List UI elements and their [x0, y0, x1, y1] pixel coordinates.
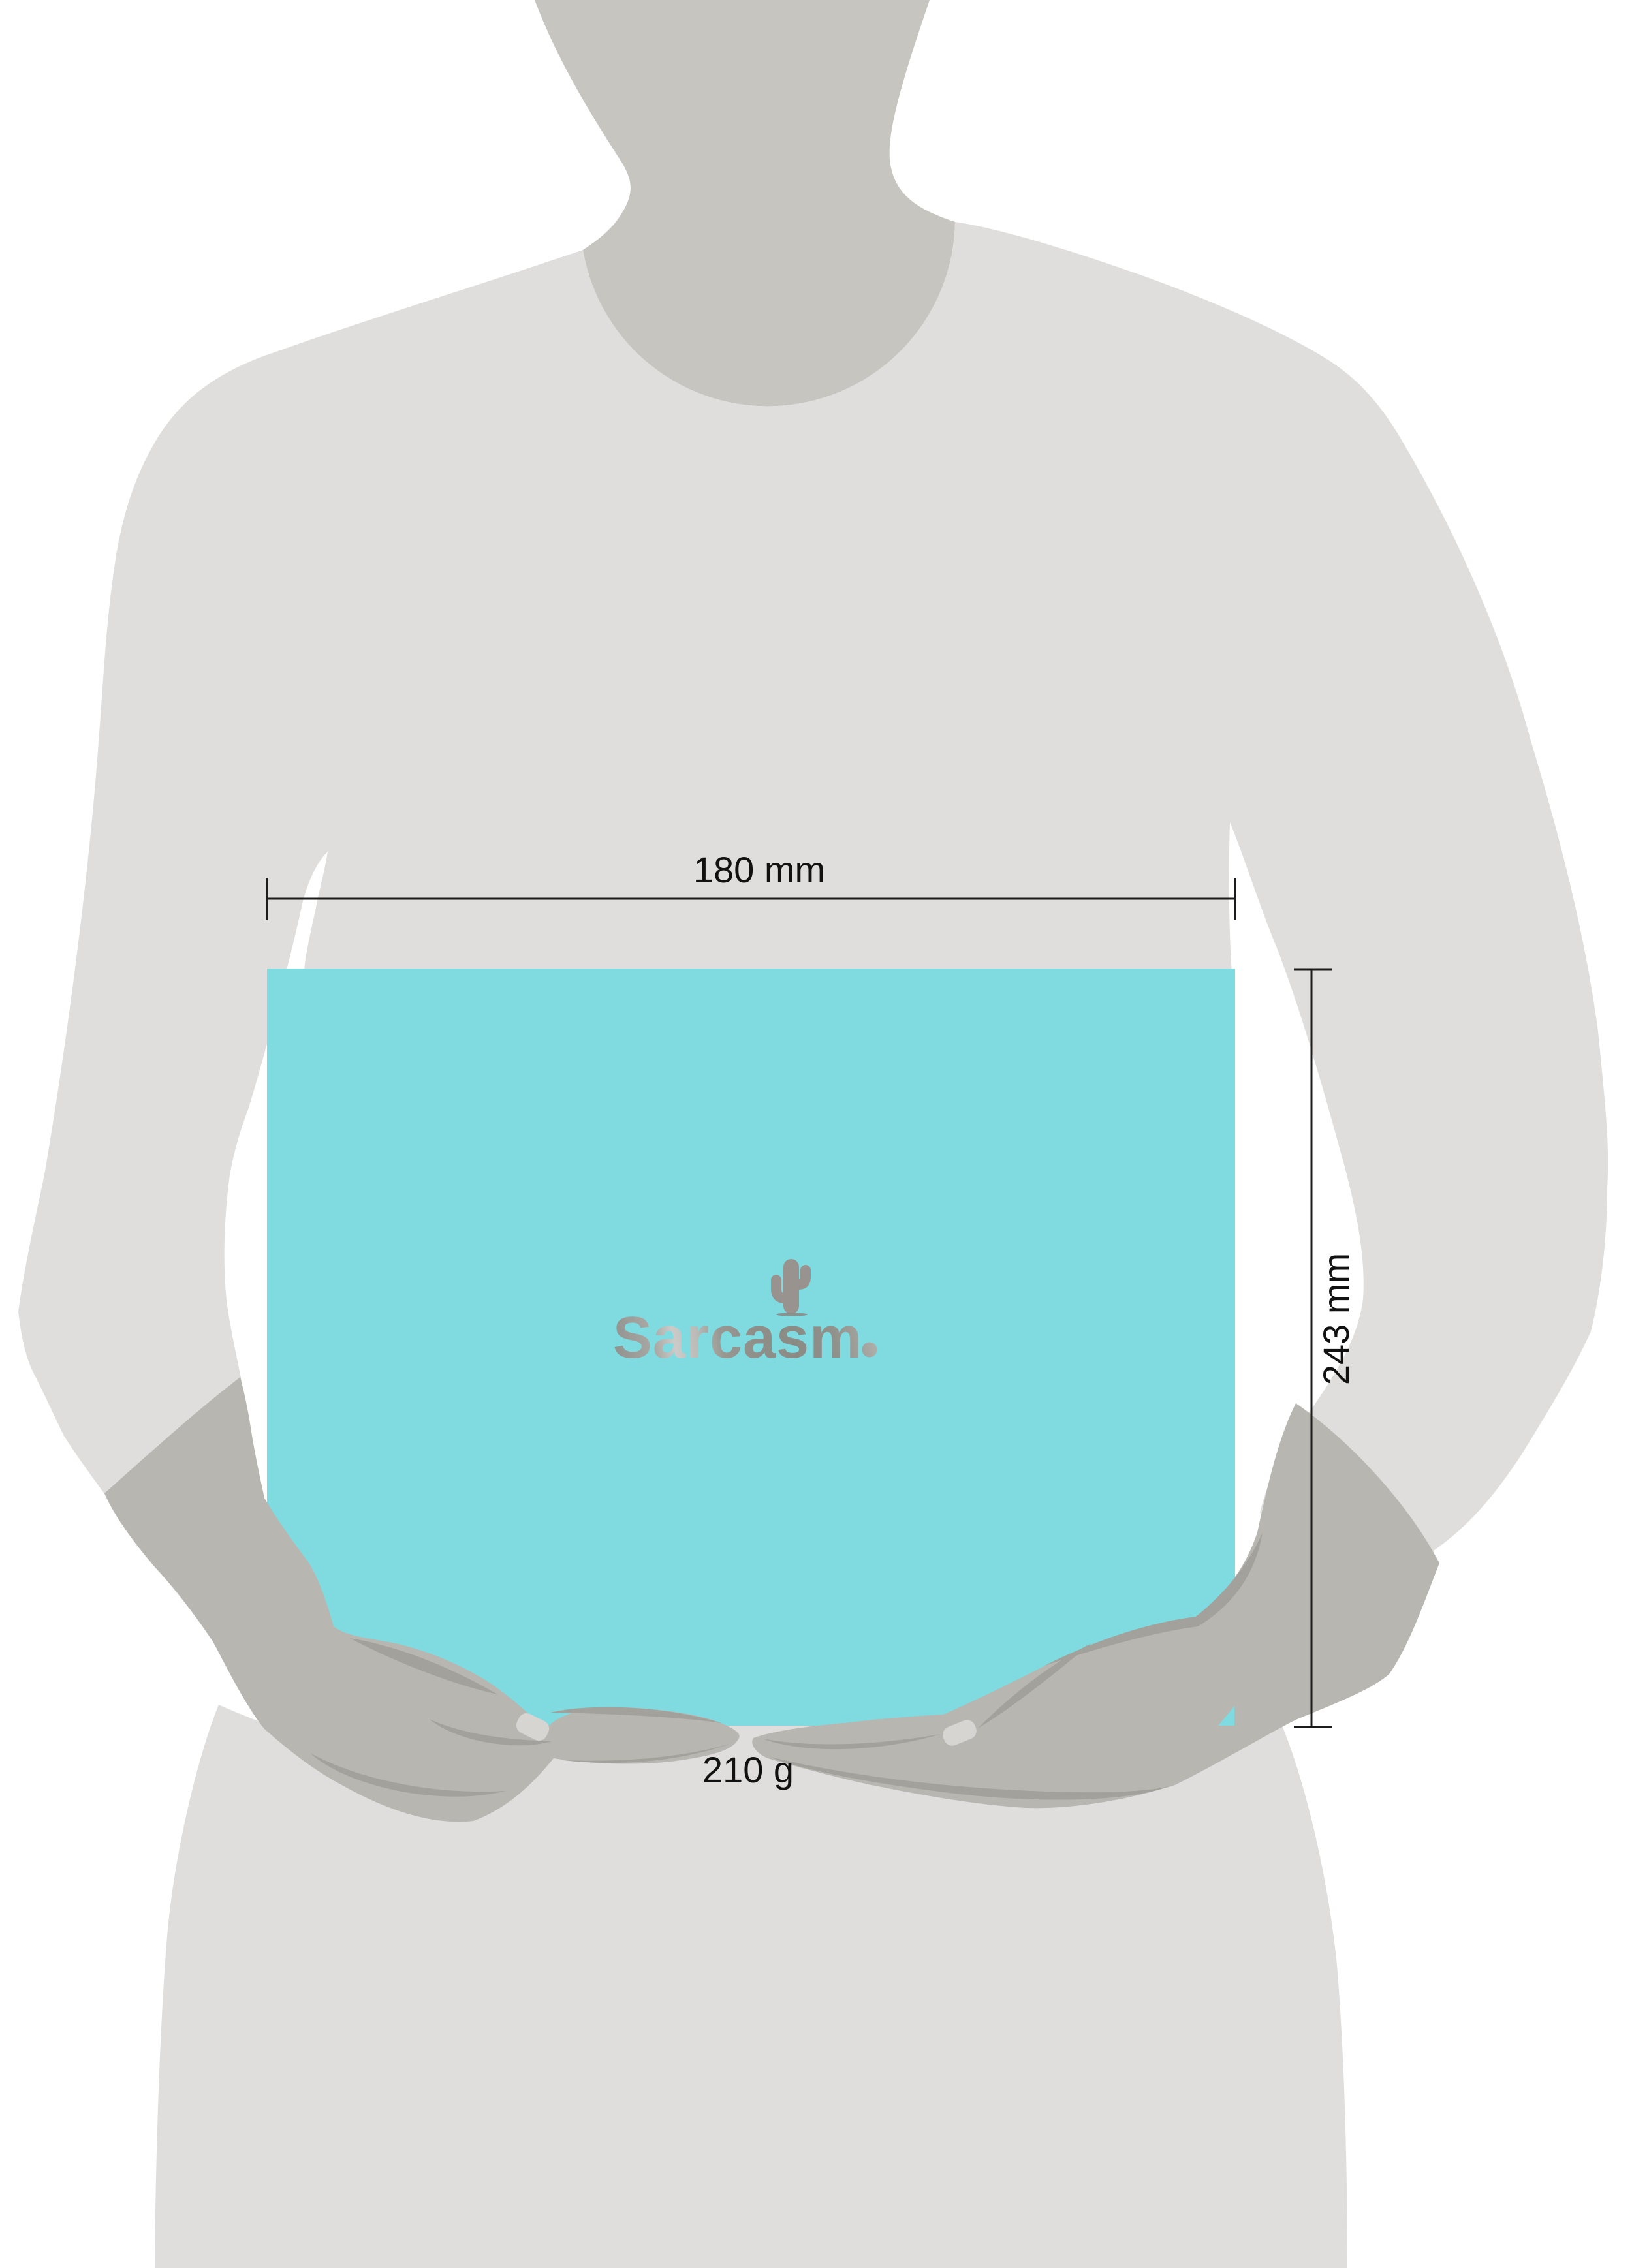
- svg-text:243 mm: 243 mm: [1315, 1253, 1357, 1385]
- svg-text:210 g: 210 g: [702, 1749, 794, 1790]
- svg-text:180 mm: 180 mm: [693, 849, 825, 890]
- svg-text:Sarcasm: Sarcasm: [613, 1305, 862, 1371]
